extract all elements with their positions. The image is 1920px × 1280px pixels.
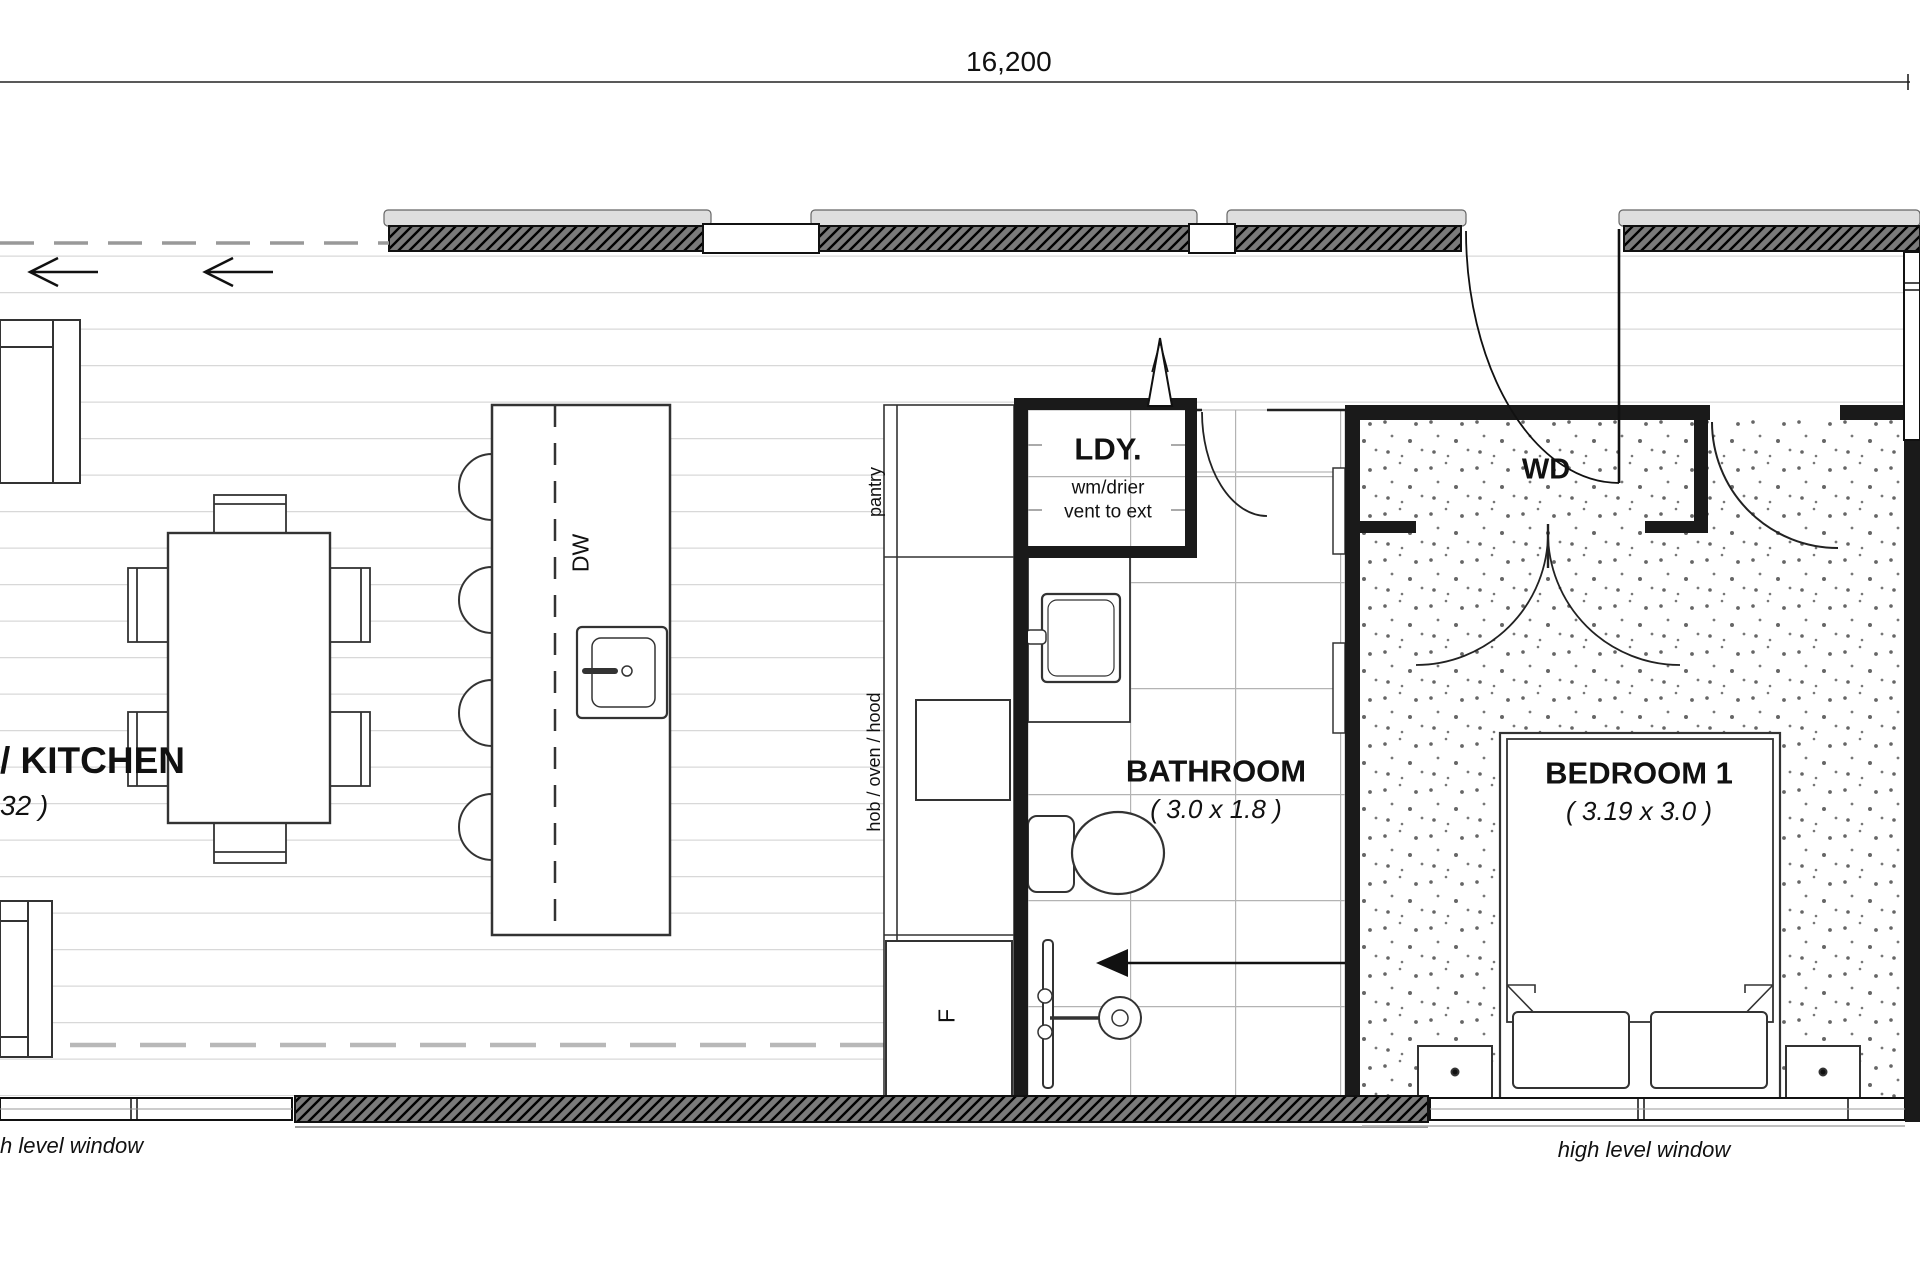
window-sills [384, 210, 1920, 226]
kitchen-sink [577, 627, 667, 718]
window-left [0, 1098, 292, 1120]
high-level-window-note-right: high level window [1558, 1139, 1730, 1161]
laundry-room-label: LDY. [1074, 434, 1141, 465]
hob-oven-hood-label: hob / oven / hood [865, 692, 883, 831]
pillow [1513, 1012, 1629, 1088]
pantry-label: pantry [866, 467, 884, 517]
bathroom-room-label: BATHROOM [1126, 756, 1306, 787]
dishwasher-label: DW [570, 534, 593, 572]
kitchen-counter-run [884, 405, 1014, 1102]
hatched-wall-segment [295, 1096, 1428, 1122]
bottom-wall [0, 1096, 1920, 1127]
bedroom-room-dims: ( 3.19 x 3.0 ) [1566, 798, 1712, 824]
laundry-note-line1: wm/drier [1072, 479, 1145, 498]
wardrobe-label: WD [1522, 456, 1570, 485]
vanity-basin [1026, 553, 1130, 722]
pillow [1651, 1012, 1767, 1088]
bathroom-room-dims: ( 3.0 x 1.8 ) [1150, 796, 1282, 822]
window-right [1430, 1098, 1905, 1120]
floor-plan: 16,200 / KITCHEN 32 ) LDY. wm/drier vent… [0, 0, 1920, 1280]
floor-plan-drawing [0, 0, 1920, 1280]
kitchen-room-dims: 32 ) [0, 792, 48, 820]
overall-dimension-label: 16,200 [966, 48, 1052, 76]
kitchen-room-label: / KITCHEN [0, 742, 185, 779]
towel-rail [1333, 643, 1345, 733]
sofa [0, 320, 80, 483]
dimension-line [0, 74, 1910, 90]
hatched-wall-segments [389, 226, 1920, 251]
oven [916, 700, 1010, 800]
laundry-note-line2: vent to ext [1064, 503, 1152, 522]
toilet [1028, 812, 1164, 894]
armchair [0, 901, 52, 1057]
right-wall-window [1904, 252, 1920, 440]
high-level-window-note-left: h level window [0, 1135, 143, 1157]
bedroom-room-label: BEDROOM 1 [1545, 758, 1733, 789]
fridge-label: F [936, 1009, 959, 1023]
towel-rail [1333, 468, 1345, 554]
